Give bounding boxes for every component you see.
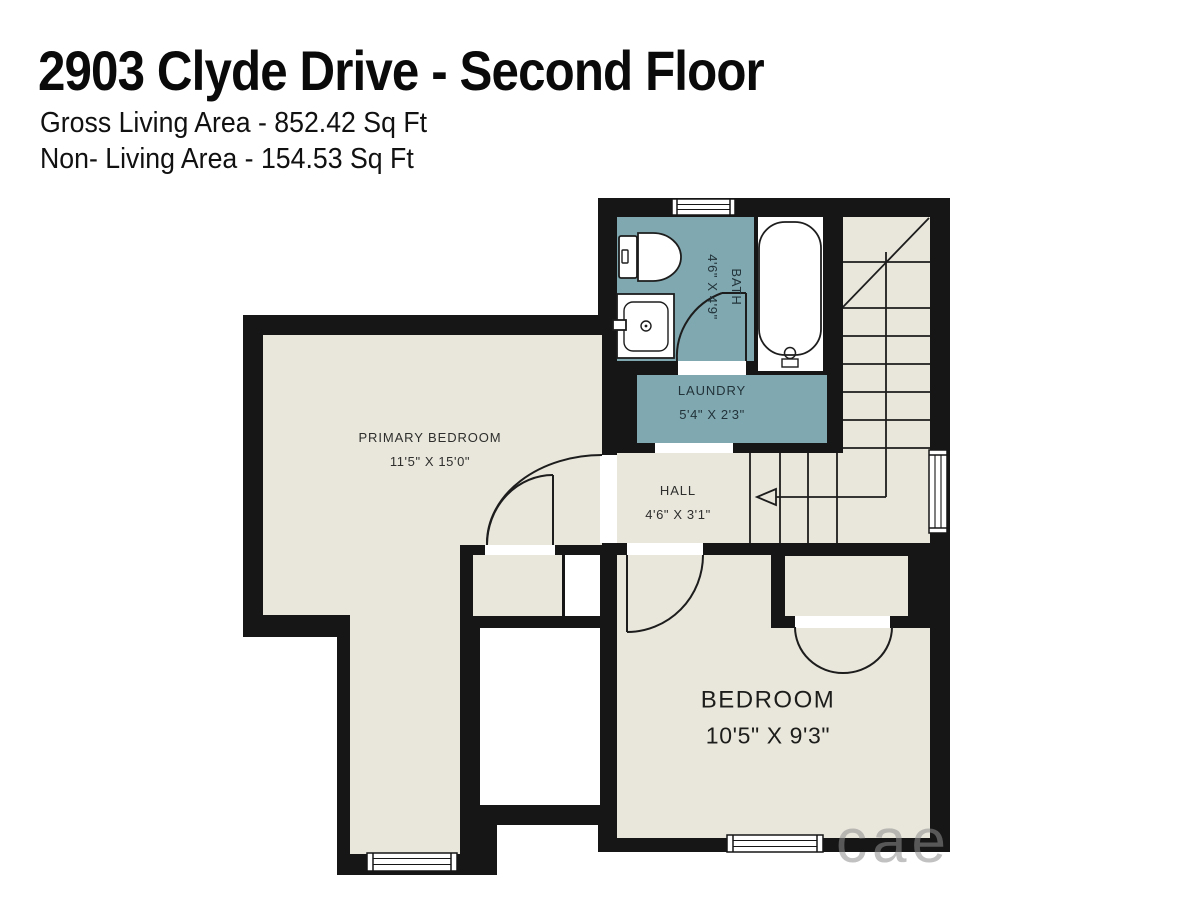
opening-bedroom [627,543,703,555]
opening-hall-primary [600,455,617,543]
opening-primary-closet [485,545,555,555]
floor-primary-extension [350,615,460,854]
laundry-name: LAUNDRY [678,379,746,403]
window-stairs-right [929,450,947,533]
opening-bedroom-closet [795,616,890,628]
bedroom-name: BEDROOM [701,682,836,719]
floor-closet-void [565,555,600,616]
toilet-icon [619,233,681,281]
window-bedroom-bottom [727,835,823,852]
bathtub-icon [759,222,821,367]
bath-name: BATH [724,254,748,320]
primary-bedroom-dims: 11'5" X 15'0" [358,450,501,474]
primary-bedroom-label: PRIMARY BEDROOM 11'5" X 15'0" [358,426,501,474]
floor-primary-lower [263,545,460,615]
window-bath-top [672,199,735,215]
laundry-label: LAUNDRY 5'4" X 2'3" [678,379,746,427]
sink-icon [613,294,674,358]
floorplan-page: 2903 Clyde Drive - Second Floor Gross Li… [0,0,1200,900]
bedroom-label: BEDROOM 10'5" X 9'3" [701,682,836,755]
laundry-dims: 5'4" X 2'3" [678,403,746,427]
opening-bath [678,361,746,375]
floorplan-drawing [0,0,1200,900]
hall-name: HALL [645,479,711,503]
window-extension-bottom [367,853,457,871]
floor-bedroom-closet [785,556,908,616]
floor-primary-closet [473,555,562,616]
watermark-logo: cae [836,806,951,877]
bedroom-dims: 10'5" X 9'3" [701,719,836,755]
hall-label: HALL 4'6" X 3'1" [645,479,711,527]
bath-label: BATH 4'6" X 4'9" [700,254,748,320]
hall-dims: 4'6" X 3'1" [645,503,711,527]
opening-laundry [655,443,733,453]
primary-bedroom-name: PRIMARY BEDROOM [358,426,501,450]
floor-open-void [480,628,600,805]
bath-dims: 4'6" X 4'9" [700,254,724,320]
